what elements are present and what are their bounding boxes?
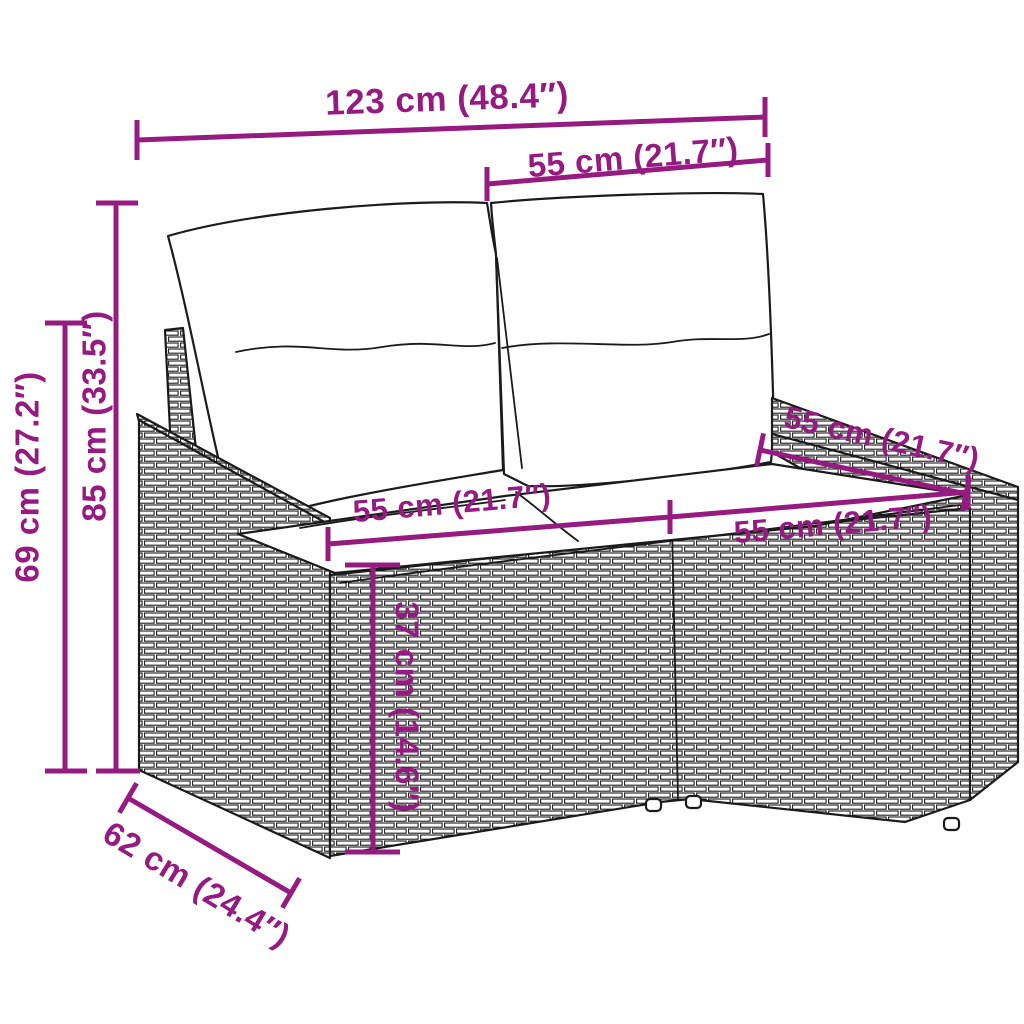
sofa-foot-center <box>686 796 701 808</box>
dim-backrest-section-width: 55 cm (21.7″) <box>487 130 768 201</box>
sofa-foot-right <box>944 818 959 830</box>
dim-seat-height-label: 37 cm (14.6″) <box>389 601 426 812</box>
dim-overall-height-label: 85 cm (33.5″) <box>76 310 113 521</box>
dim-overall-width-label: 123 cm (48.4″) <box>325 75 570 122</box>
dim-backrest-section-width-label: 55 cm (21.7″) <box>526 130 740 185</box>
rattan-loveseat-dimension-diagram: 123 cm (48.4″) 55 cm (21.7″) 85 cm (33.5… <box>0 0 1024 1024</box>
sofa-foot-left <box>646 799 661 811</box>
dim-armrest-height-label: 69 cm (27.2″) <box>9 371 46 582</box>
dim-overall-height: 85 cm (33.5″) <box>76 203 141 771</box>
dim-overall-depth-label: 62 cm (24.4″) <box>97 814 297 955</box>
diagram-canvas: 123 cm (48.4″) 55 cm (21.7″) 85 cm (33.5… <box>0 0 1024 1024</box>
